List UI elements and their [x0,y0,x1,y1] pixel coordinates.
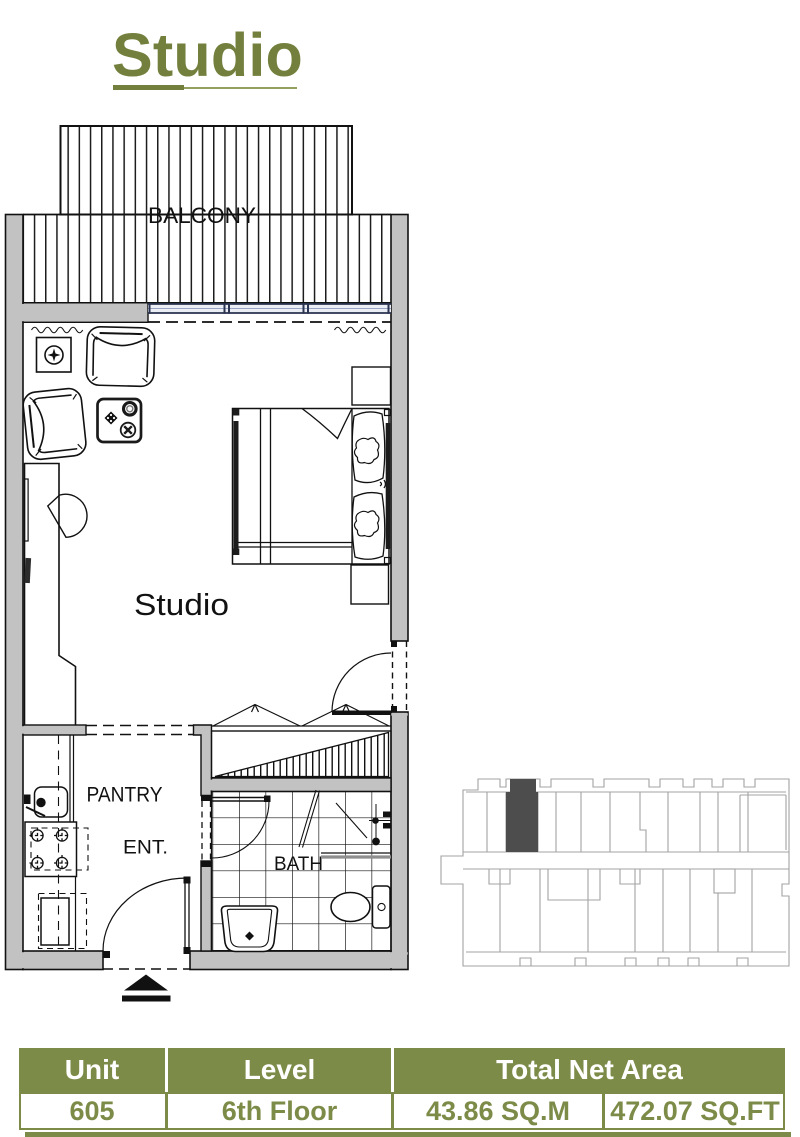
svg-text:Studio: Studio [134,587,229,622]
svg-text:BALCONY: BALCONY [148,203,256,228]
svg-text:PANTRY: PANTRY [87,784,163,807]
svg-text:BATH: BATH [274,854,323,875]
svg-text:ENT.: ENT. [123,838,168,859]
